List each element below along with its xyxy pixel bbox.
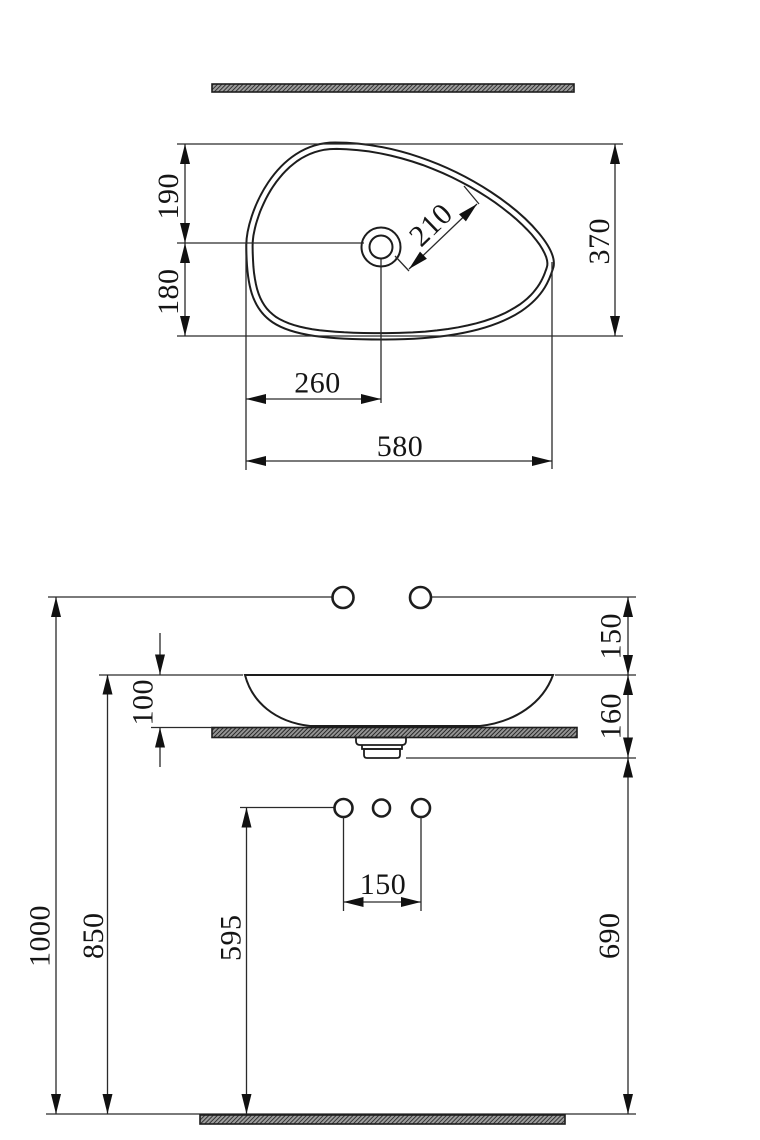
- svg-text:260: 260: [294, 367, 341, 400]
- svg-text:150: 150: [595, 613, 628, 660]
- svg-text:180: 180: [152, 269, 185, 316]
- svg-text:370: 370: [583, 218, 616, 265]
- svg-text:690: 690: [593, 913, 626, 960]
- svg-text:580: 580: [377, 430, 424, 463]
- svg-text:190: 190: [152, 173, 185, 220]
- svg-text:850: 850: [77, 913, 110, 960]
- svg-text:1000: 1000: [24, 905, 57, 967]
- svg-text:150: 150: [360, 868, 407, 901]
- svg-text:160: 160: [595, 693, 628, 740]
- svg-text:100: 100: [127, 679, 160, 726]
- svg-text:595: 595: [215, 915, 248, 962]
